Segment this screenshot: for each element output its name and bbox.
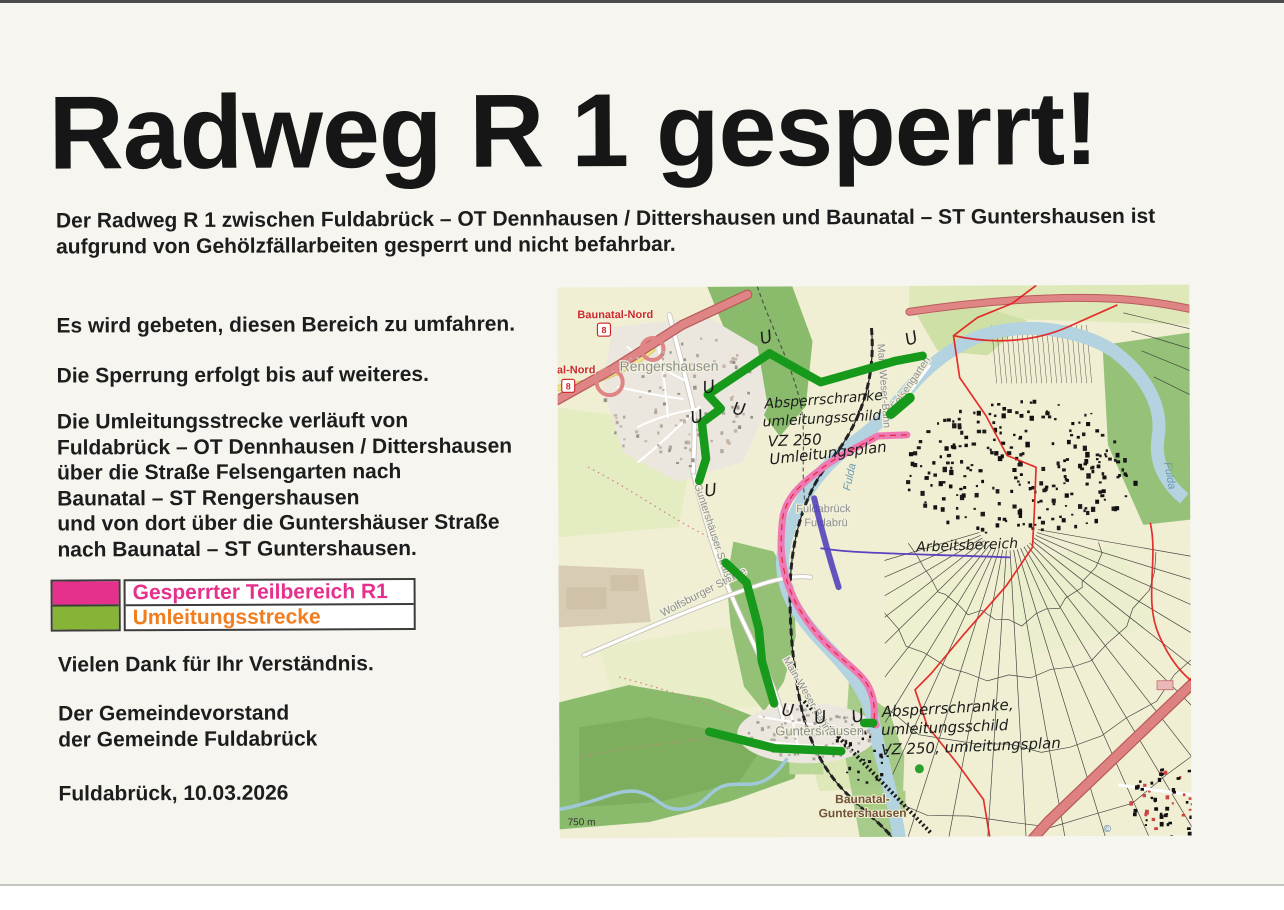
thanks-line: Vielen Dank für Ihr Verständnis.	[58, 651, 374, 678]
exit-badge: 8	[562, 379, 575, 392]
label-baunatal-nord-1: Baunatal-Nord	[577, 309, 653, 321]
closed-route-swatch	[53, 581, 119, 604]
intro-paragraph: Der Radweg R 1 zwischen Fuldabrück – OT …	[56, 204, 1196, 260]
signature-block: Der Gemeindevorstand der Gemeinde Fuldab…	[58, 700, 317, 753]
detour-line: Baunatal – ST Rengershausen	[57, 484, 577, 512]
detour-paragraph: Die Umleitungsstrecke verläuft von Fulda…	[57, 407, 578, 562]
closed-route-label: Gesperrter Teilbereich R1	[126, 580, 414, 604]
label-fuldabrueck: Fuldabrück	[796, 503, 851, 515]
place-date-line: Fuldabrück, 10.03.2026	[58, 781, 288, 808]
duration-line: Die Sperrung erfolgt bis auf weiteres.	[57, 362, 429, 389]
detour-dot	[915, 764, 924, 773]
legend-label-column: Gesperrter Teilbereich R1 Umleitungsstre…	[124, 578, 416, 631]
map-legend: Gesperrter Teilbereich R1 Umleitungsstre…	[51, 578, 416, 632]
poster-sheet: Radweg R 1 gesperrt! Der Radweg R 1 zwis…	[0, 0, 1284, 910]
detour-map: Baunatal-Nord 8 Baunatal-Nord 8 Rengersh…	[557, 285, 1191, 839]
request-line: Es wird gebeten, diesen Bereich zu umfah…	[56, 312, 515, 340]
map-copyright: ©	[1104, 824, 1112, 835]
legend-swatch-column	[51, 579, 121, 631]
map-image: Baunatal-Nord 8 Baunatal-Nord 8 Rengersh…	[557, 285, 1191, 839]
svg-text:8: 8	[566, 381, 571, 391]
detour-line: über die Straße Felsengarten nach	[57, 458, 577, 486]
motorway-shield	[1157, 681, 1173, 690]
svg-text:8: 8	[601, 325, 606, 335]
industrial-area	[558, 565, 650, 627]
detour-line: nach Baunatal – ST Guntershausen.	[57, 535, 577, 563]
detour-route-swatch	[53, 604, 119, 629]
poster-title: Radweg R 1 gesperrt!	[48, 69, 1229, 193]
exit-badge: 8	[597, 323, 610, 336]
label-rengershausen: Rengershausen	[620, 358, 719, 374]
detour-line: Die Umleitungsstrecke verläuft von	[57, 407, 577, 435]
label-baunatal-guntershausen: Baunatal-	[835, 792, 890, 806]
signature-line: der Gemeinde Fuldabrück	[58, 726, 317, 753]
detour-line: Fuldabrück – OT Dennhausen / Dittershaus…	[57, 433, 577, 461]
map-scale-label: 750 m	[568, 817, 596, 828]
detour-u-mark: U	[781, 700, 796, 721]
signature-line: Der Gemeindevorstand	[58, 700, 317, 727]
label-baunatal-nord-2: Baunatal-Nord	[557, 364, 595, 376]
label-fuldabrueck: Fuldabrü	[804, 517, 847, 529]
label-baunatal-guntershausen: Guntershausen	[819, 806, 907, 820]
detour-line: und von dort über die Guntershäuser Stra…	[57, 509, 577, 537]
detour-route-label: Umleitungsstrecke	[126, 603, 414, 629]
